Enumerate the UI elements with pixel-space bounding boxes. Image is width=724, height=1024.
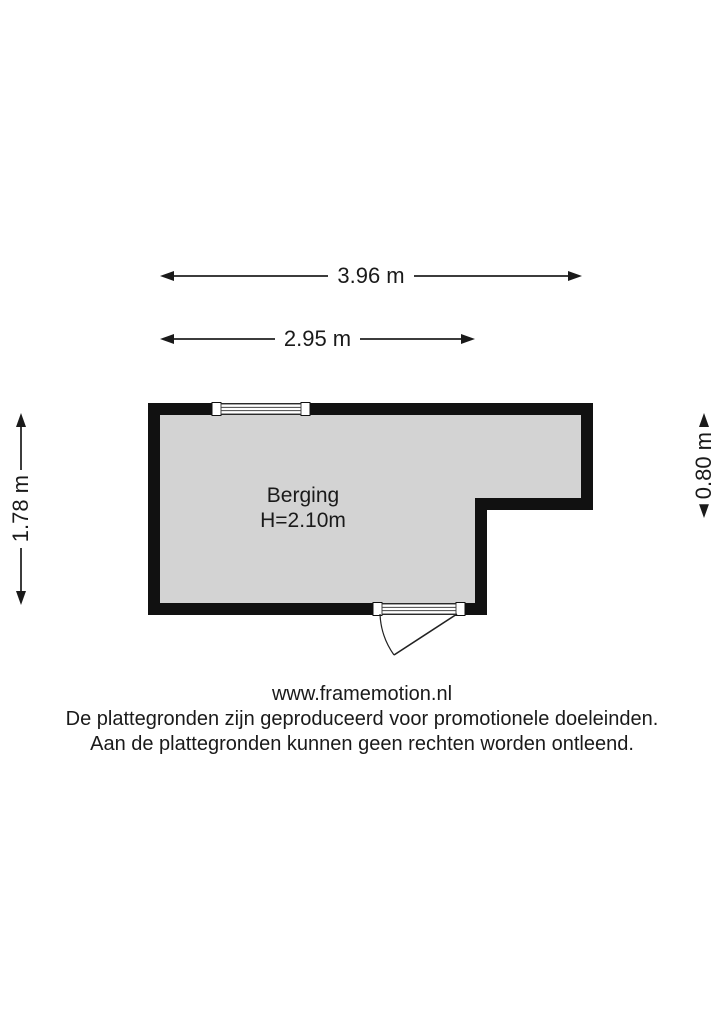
footer-disclaimer-line2: Aan de plattegronden kunnen geen rechten… [0, 732, 724, 757]
window-symbol [212, 403, 310, 416]
arrow-down-icon [699, 504, 709, 518]
arrow-left-icon [160, 334, 174, 344]
arrow-right-icon [568, 271, 582, 281]
room-ceiling-height: H=2.10m [163, 508, 443, 533]
door-leaf [394, 614, 457, 655]
dimension-width-total: 3.96 m [160, 254, 582, 298]
dimension-line [414, 275, 568, 277]
dimension-line [174, 275, 328, 277]
footer-disclaimer-line1: De plattegronden zijn geproduceerd voor … [0, 707, 724, 732]
dimension-label: 0.80 m [690, 427, 718, 504]
dimension-label: 2.95 m [275, 326, 360, 352]
footer: www.framemotion.nl De plattegronden zijn… [0, 682, 724, 757]
dimension-label: 3.96 m [328, 263, 413, 289]
dimension-depth-right: 0.80 m [689, 413, 719, 499]
arrow-up-icon [16, 413, 26, 427]
arrow-right-icon [461, 334, 475, 344]
arrow-left-icon [160, 271, 174, 281]
dimension-line [174, 338, 275, 340]
door-symbol [373, 603, 465, 656]
dimension-line [360, 338, 461, 340]
dimension-width-partial: 2.95 m [160, 317, 475, 361]
dimension-line [20, 548, 22, 591]
footer-website: www.framemotion.nl [0, 682, 724, 707]
arrow-up-icon [699, 413, 709, 427]
arrow-down-icon [16, 591, 26, 605]
room-name: Berging [163, 483, 443, 508]
dimension-depth-left: 1.78 m [6, 413, 36, 605]
dimension-label: 1.78 m [7, 470, 35, 547]
dimension-line [20, 427, 22, 470]
floorplan-page: 3.96 m 2.95 m 1.78 m 0.80 m Berging H=2.… [0, 0, 724, 1024]
room-label: Berging H=2.10m [163, 483, 443, 533]
door-swing-arc [380, 614, 394, 655]
